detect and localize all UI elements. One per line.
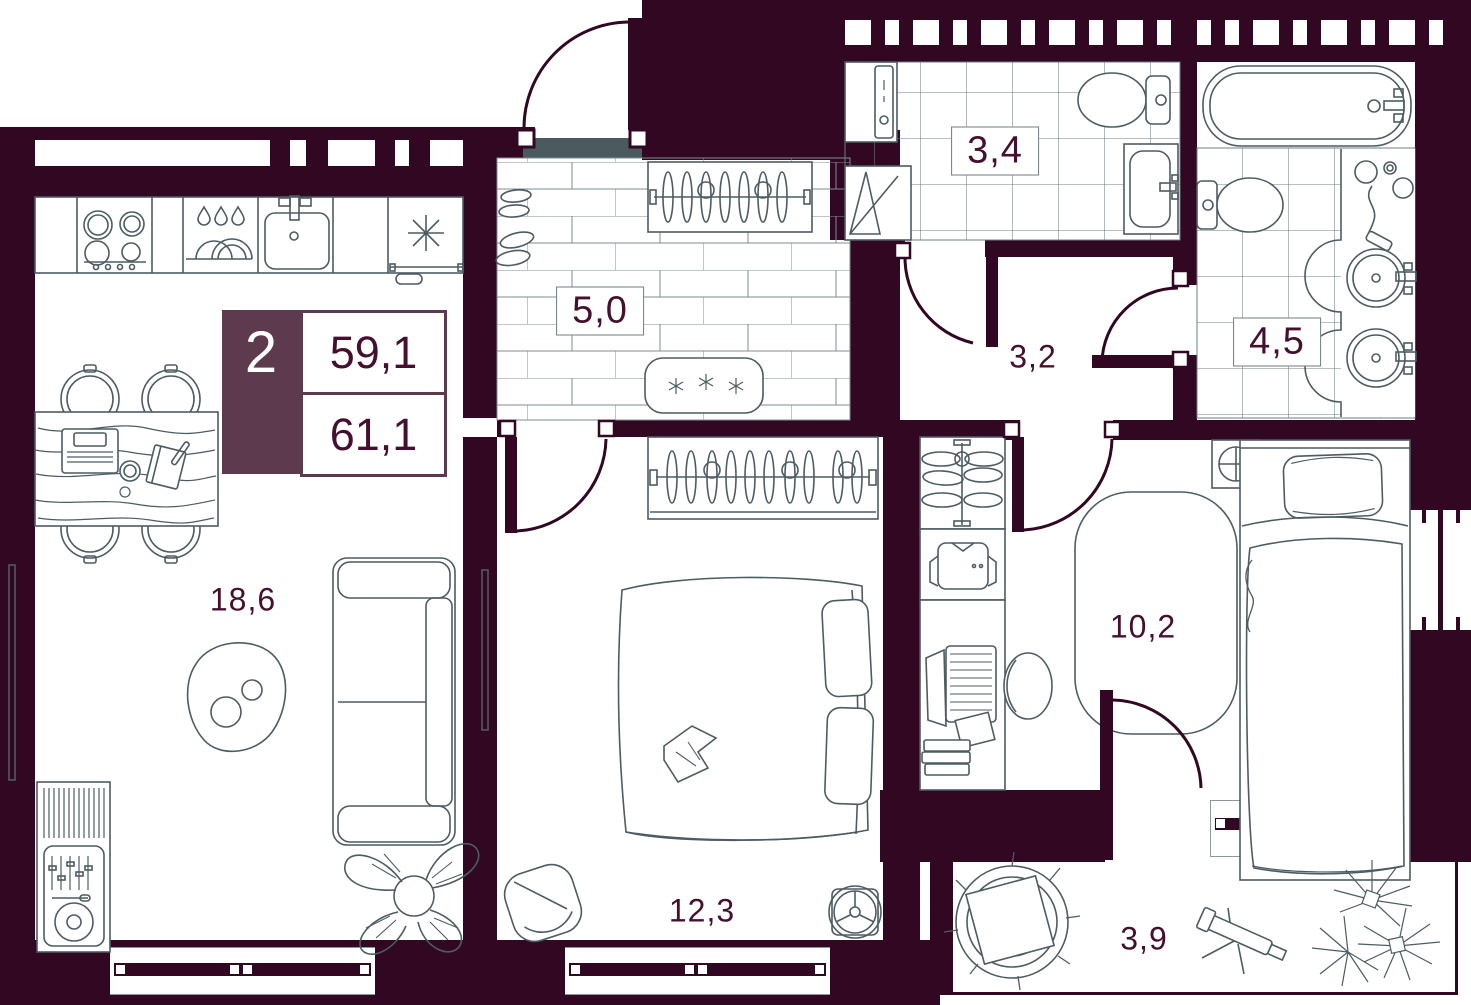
telescope <box>1196 907 1289 974</box>
room-area-value: 3,4 <box>967 130 1023 172</box>
room-label-bathroom1: 3,4 <box>951 127 1039 176</box>
shower-corner <box>845 166 911 240</box>
legend-room-count: 2 <box>222 310 300 474</box>
entrance-door <box>517 18 647 147</box>
balcony-door <box>1100 690 1201 860</box>
room-area-value: 3,9 <box>1120 921 1167 957</box>
room-area-value: 3,2 <box>1009 339 1056 375</box>
bathtub <box>1203 66 1411 146</box>
kitchen-counter <box>35 196 463 284</box>
room-label-hallway: 5,0 <box>556 287 644 336</box>
bathroom1-door <box>895 243 973 343</box>
dining-table-set <box>35 365 218 563</box>
room-area-value: 5,0 <box>572 290 628 332</box>
sofa <box>333 558 455 845</box>
single-bed <box>1240 440 1410 880</box>
living-area-value: 59,1 <box>330 327 418 379</box>
armchair <box>499 859 587 947</box>
room-area-value: 18,6 <box>210 582 276 618</box>
ottoman <box>645 358 763 413</box>
room-count-value: 2 <box>245 324 277 382</box>
bedroom1-clothes-rail <box>648 437 878 519</box>
bedroom2-door <box>1004 422 1120 532</box>
toilet-bathroom2 <box>1197 178 1283 232</box>
closet-side-view <box>920 437 1005 529</box>
desk-chair <box>1004 653 1052 719</box>
toilet-bathroom1 <box>1078 73 1170 127</box>
room-area-value: 4,5 <box>1249 321 1305 363</box>
dj-console <box>37 782 110 952</box>
total-area-value: 61,1 <box>330 409 418 461</box>
legend-areas: 59,1 61,1 <box>300 310 447 474</box>
papasan-chair <box>944 852 1080 990</box>
legend-living-area: 59,1 <box>300 310 447 395</box>
double-bed <box>619 577 874 840</box>
room-label-balcony: 3,9 <box>1120 921 1167 958</box>
radiator-living <box>9 565 15 780</box>
room-label-bathroom2: 4,5 <box>1233 318 1321 367</box>
bathroom2-door <box>1092 271 1188 368</box>
bean-bag-chair <box>188 643 286 752</box>
bedroom1-door <box>500 421 614 533</box>
room-label-living: 18,6 <box>210 582 276 619</box>
folded-shirt <box>920 529 1005 600</box>
desk <box>920 600 1005 790</box>
floor-plan: 18,6 5,0 3,4 3,2 4,5 10,2 12,3 3,9 2 59,… <box>0 0 1471 1005</box>
sink-bathroom1 <box>1124 144 1178 234</box>
room-label-bedroom1: 12,3 <box>669 893 735 930</box>
monstera-plant <box>345 844 479 954</box>
room-label-bedroom2: 10,2 <box>1110 609 1176 646</box>
hallway-clothes-rail <box>648 162 812 232</box>
room-area-value: 10,2 <box>1110 609 1176 645</box>
radiator-bedroom1 <box>482 570 488 730</box>
room-label-corridor: 3,2 <box>1009 339 1056 376</box>
room-area-value: 12,3 <box>669 893 735 929</box>
fan <box>829 886 881 938</box>
washing-machine <box>845 62 897 142</box>
legend: 2 59,1 61,1 <box>222 310 447 474</box>
legend-total-area: 61,1 <box>300 392 447 477</box>
furniture-layer <box>0 0 1471 1005</box>
